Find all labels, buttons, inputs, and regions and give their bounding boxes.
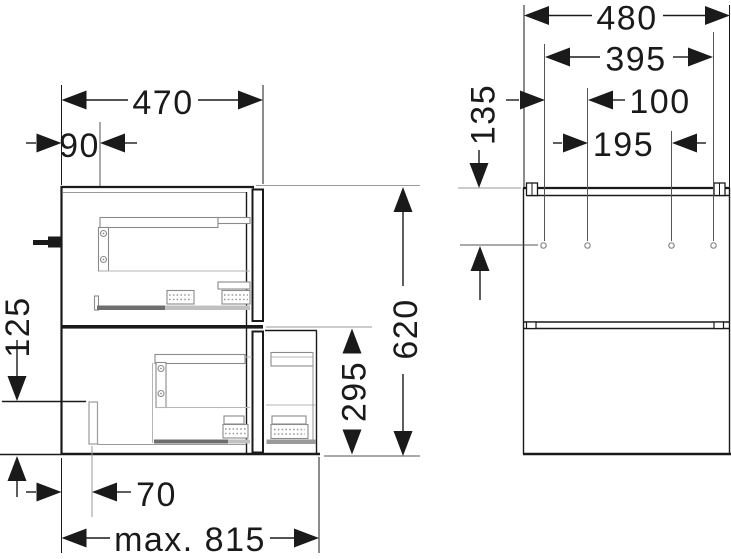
upper-drawer-slide (95, 218, 251, 311)
dim-max-815-label: max. 815 (114, 521, 266, 559)
side-view (33, 186, 320, 455)
wall-bracket-knob (33, 237, 61, 248)
mounting-holes (541, 243, 716, 248)
dim-195: 195 (553, 126, 706, 164)
dimensions: 470 90 125 70 (0, 0, 730, 559)
lower-drawer-slide (153, 355, 253, 444)
lower-drawer-front-panel (253, 332, 264, 453)
dim-395-label: 395 (605, 41, 666, 79)
dim-395: 395 (545, 41, 713, 79)
rear-compartment-slide (266, 352, 316, 444)
siphon-space-marker (89, 402, 246, 445)
dim-90-label: 90 (59, 127, 100, 165)
dim-480-label: 480 (596, 0, 657, 38)
technical-drawing: 470 90 125 70 (0, 0, 731, 559)
dim-295-label: 295 (336, 361, 374, 422)
dim-195-label: 195 (593, 126, 654, 164)
dim-135-label: 135 (465, 84, 503, 145)
dim-470-label: 470 (132, 84, 193, 122)
rear-outline (523, 183, 731, 454)
dim-620-label: 620 (387, 298, 425, 359)
dimension-drawing-canvas: 470 90 125 70 (0, 0, 731, 559)
dim-70-label: 70 (136, 476, 177, 514)
dim-100-label: 100 (629, 83, 690, 121)
upper-drawer-front-panel (253, 190, 264, 322)
dim-100: 100 (506, 83, 691, 121)
rear-view (523, 32, 731, 454)
dim-125-label: 125 (0, 296, 37, 357)
dim-max-815: max. 815 (62, 457, 320, 559)
dim-90: 90 (26, 122, 137, 186)
dim-70: 70 (26, 446, 177, 517)
